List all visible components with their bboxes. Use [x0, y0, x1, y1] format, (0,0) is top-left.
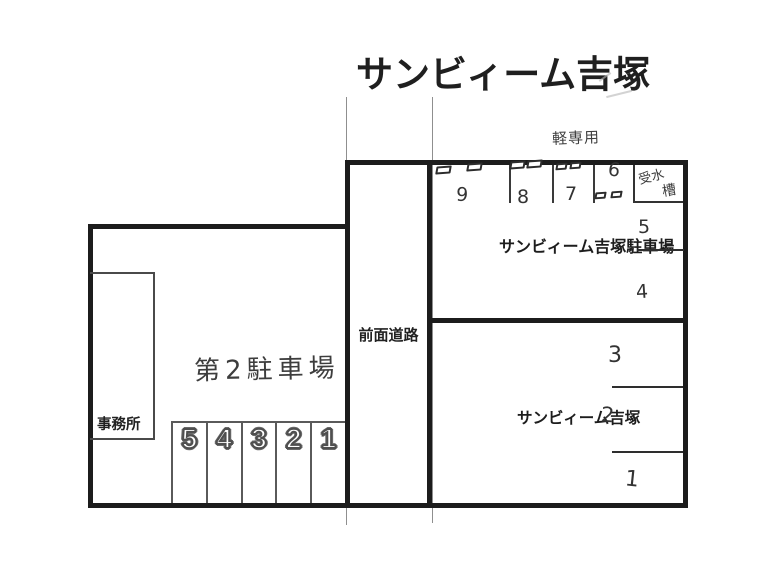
office-label: 事務所: [97, 413, 141, 434]
side-stall-divider: [612, 386, 683, 388]
kei-stall-divider: [509, 165, 511, 203]
side-stall-number: 2: [600, 403, 615, 428]
stall-number: 2: [277, 423, 310, 455]
road-label: 前面道路: [345, 324, 432, 345]
stall-1: 1: [310, 423, 345, 503]
diagram-title: サンビィーム吉塚: [356, 44, 650, 98]
stall-2: 2: [275, 423, 310, 503]
block-divider-line: [432, 318, 688, 323]
kei-car-icon: [466, 162, 483, 171]
stall-number: 4: [208, 423, 241, 455]
side-stall-number: 4: [635, 281, 649, 304]
side-stall-divider: [612, 451, 683, 453]
kei-car-icon: [526, 159, 543, 168]
building-name: サンビィーム吉塚: [517, 406, 640, 428]
stall-3: 3: [241, 423, 276, 503]
kei-stall-divider: [552, 165, 554, 203]
kei-car-icon: [610, 191, 622, 199]
stall-number: 1: [312, 423, 345, 455]
kei-car-icon: [569, 162, 581, 170]
kei-car-icon: [555, 163, 567, 171]
kei-car-icon: [594, 192, 606, 200]
side-stall-divider: [637, 249, 684, 251]
stall-number: 3: [243, 423, 276, 455]
side-stall-number: 5: [638, 216, 650, 238]
stall-5: 5: [171, 423, 206, 503]
kei-stall-number: 7: [565, 183, 577, 205]
kei-only-label: 軽専用: [552, 126, 601, 149]
kei-stall-number: 8: [517, 186, 529, 208]
lot2-stall-row: 5 4 3 2 1: [171, 421, 345, 503]
stall-number: 5: [173, 423, 206, 455]
stall-4: 4: [206, 423, 241, 503]
lot2-label: 第2駐車場: [194, 347, 340, 387]
parking-layout-diagram: サンビィーム吉塚 事務所 第2駐車場 5 4 3 2 1 前面道路 軽専用 受水…: [0, 0, 781, 574]
side-stall-number: 3: [608, 343, 622, 368]
main-lot-outline: [432, 160, 688, 508]
side-stall-number: 1: [624, 466, 641, 492]
kei-stall-number: 9: [455, 184, 468, 207]
kei-car-icon: [435, 165, 452, 174]
kei-car-icon: [509, 160, 526, 169]
